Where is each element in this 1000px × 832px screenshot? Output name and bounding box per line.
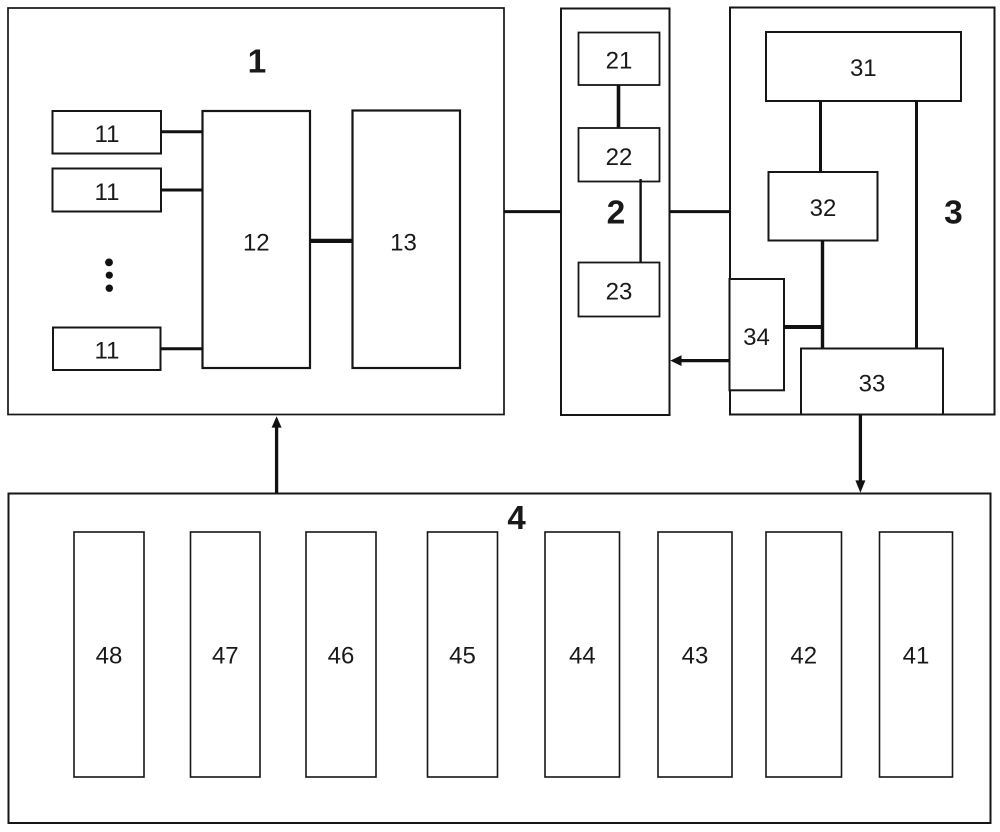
svg-text:31: 31 <box>850 55 877 82</box>
svg-text:11: 11 <box>95 179 120 206</box>
svg-text:44: 44 <box>569 642 596 669</box>
svg-text:41: 41 <box>903 642 930 669</box>
svg-text:33: 33 <box>859 370 886 397</box>
svg-text:1: 1 <box>248 44 267 81</box>
svg-text:32: 32 <box>810 195 837 222</box>
svg-text:48: 48 <box>96 642 123 669</box>
svg-text:11: 11 <box>95 121 120 148</box>
svg-text:11: 11 <box>95 338 120 365</box>
svg-text:13: 13 <box>390 230 417 257</box>
svg-text:45: 45 <box>449 642 476 669</box>
svg-text:46: 46 <box>328 642 355 669</box>
svg-text:21: 21 <box>606 48 633 75</box>
svg-text:42: 42 <box>790 642 817 669</box>
svg-text:43: 43 <box>682 642 709 669</box>
svg-text:22: 22 <box>606 144 633 171</box>
svg-text:4: 4 <box>507 499 526 536</box>
svg-text:2: 2 <box>607 195 626 232</box>
svg-text:3: 3 <box>944 195 963 232</box>
svg-text:47: 47 <box>212 642 239 669</box>
svg-text:23: 23 <box>606 278 633 305</box>
svg-text:34: 34 <box>743 324 770 351</box>
svg-text:12: 12 <box>243 230 270 257</box>
